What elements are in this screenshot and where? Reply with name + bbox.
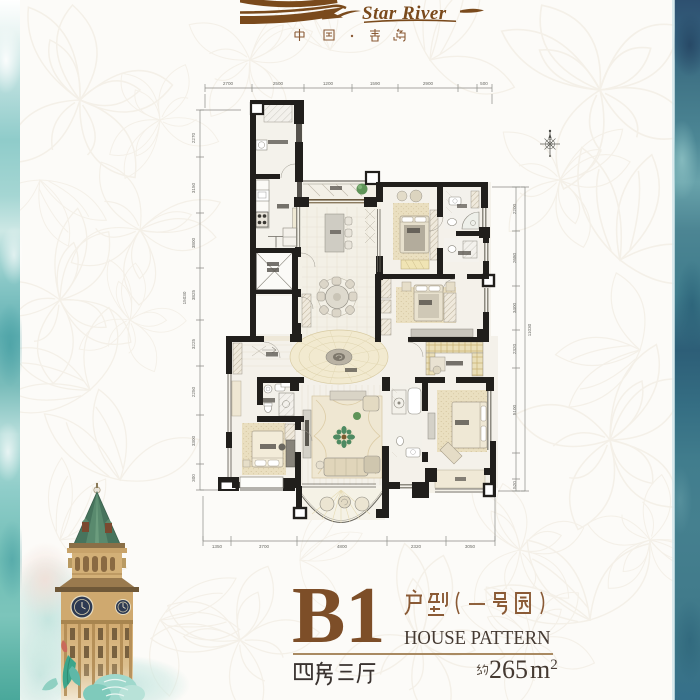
svg-text:3300: 3300: [191, 435, 196, 446]
svg-text:2680: 2680: [512, 252, 517, 263]
svg-text:2270: 2270: [191, 132, 196, 143]
svg-text:2200: 2200: [512, 203, 517, 214]
svg-text:15030: 15030: [182, 291, 187, 304]
svg-text:11030: 11030: [527, 323, 532, 336]
svg-text:3825: 3825: [191, 289, 196, 300]
svg-text:500: 500: [480, 81, 488, 86]
svg-text:3400: 3400: [512, 302, 517, 313]
svg-text:2250: 2250: [191, 386, 196, 397]
svg-text:2700: 2700: [223, 81, 234, 86]
svg-text:3150: 3150: [191, 182, 196, 193]
svg-text:1200: 1200: [323, 81, 334, 86]
svg-text:300: 300: [191, 474, 196, 482]
svg-text:2500: 2500: [273, 81, 284, 86]
svg-text:3800: 3800: [191, 237, 196, 248]
svg-text:3700: 3700: [259, 544, 270, 549]
svg-text:2320: 2320: [512, 343, 517, 354]
svg-text:3225: 3225: [191, 338, 196, 349]
svg-text:5100: 5100: [512, 404, 517, 415]
svg-text:1590: 1590: [370, 81, 381, 86]
svg-text:3050: 3050: [465, 544, 476, 549]
svg-text:2900: 2900: [423, 81, 434, 86]
svg-text:1350: 1350: [212, 544, 223, 549]
svg-text:520: 520: [512, 481, 517, 489]
svg-text:2320: 2320: [411, 544, 422, 549]
svg-text:4800: 4800: [337, 544, 348, 549]
